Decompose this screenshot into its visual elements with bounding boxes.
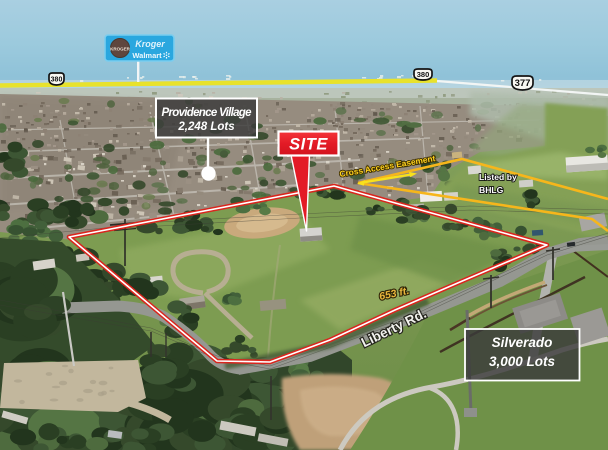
svg-text:Kroger: Kroger [135, 39, 165, 49]
svg-text:BHLG: BHLG [479, 185, 504, 195]
svg-text:377: 377 [515, 78, 531, 89]
svg-text:KROGER: KROGER [110, 47, 131, 52]
svg-text:380: 380 [417, 70, 430, 79]
svg-text:Listed by: Listed by [479, 172, 517, 182]
svg-text:3,000 Lots: 3,000 Lots [489, 354, 556, 369]
svg-text:Providence Village: Providence Village [162, 107, 253, 119]
svg-text:2,248 Lots: 2,248 Lots [177, 121, 234, 133]
svg-text:SITE: SITE [289, 136, 328, 154]
svg-text:Walmart: Walmart [132, 51, 162, 60]
svg-text:Silverado: Silverado [492, 335, 553, 350]
svg-text:380: 380 [51, 77, 63, 84]
